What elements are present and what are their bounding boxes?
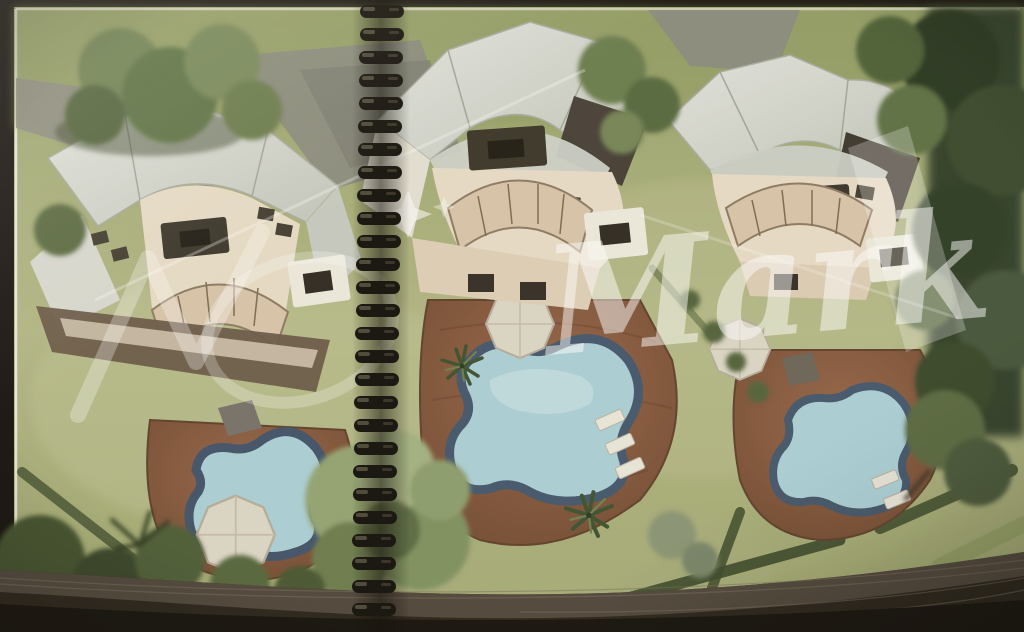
warm-cast-overlay <box>0 0 1024 632</box>
photo-of-spiral-brochure: Mark <box>0 0 1024 632</box>
